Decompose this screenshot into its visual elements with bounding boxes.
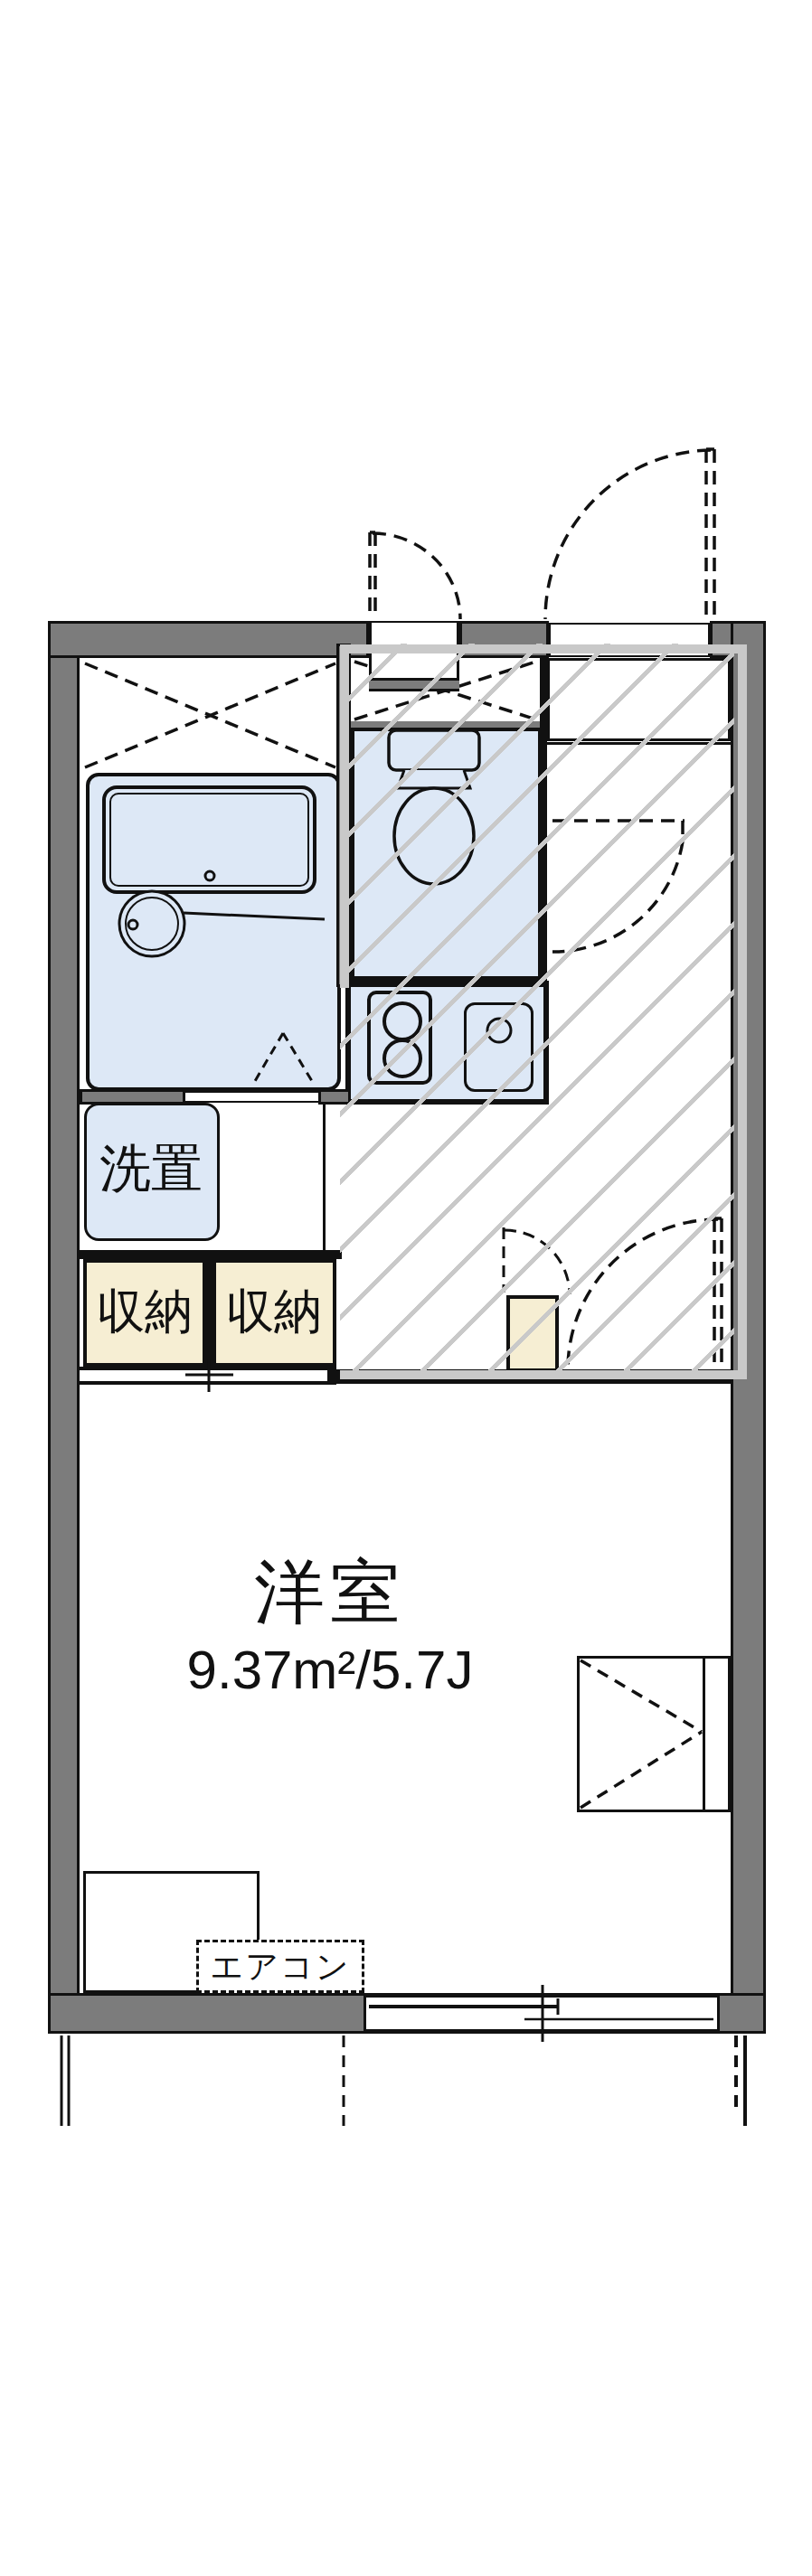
entrance-door-swing: [545, 449, 714, 619]
wall-left: [48, 621, 80, 2034]
wall-bath-bottom-left: [80, 1089, 185, 1105]
wall-bottom-right-corner: [717, 1993, 766, 2034]
wall-top-left: [48, 621, 369, 658]
floor-plan: 洋室 9.37m²/5.7J 洗置 収納 収納 エアコン: [0, 0, 812, 2576]
wall-bottom-left: [48, 1993, 366, 2034]
main-room-area: 9.37m²/5.7J: [187, 1639, 474, 1701]
wall-washroom-hall: [323, 1105, 326, 1250]
hatch-frame-top: [340, 644, 747, 653]
wall-washroom-bottom: [80, 1250, 342, 1259]
balcony-lines: [61, 2035, 745, 2126]
ps-door-swing: [370, 532, 460, 619]
washer-space-label: 洗置: [99, 1134, 203, 1204]
hatch-frame-bottom: [340, 1370, 747, 1379]
wall-right: [731, 621, 766, 2034]
bath-fixtures: [119, 871, 325, 956]
bath-upper-x-mark: [85, 663, 335, 767]
storage-right-label: 収納: [226, 1280, 322, 1345]
closet-slider-ticks: [185, 1359, 233, 1392]
aircon-label: エアコン: [210, 1945, 350, 1989]
bath-folding-door-mark: [255, 1033, 312, 1081]
storage-left-label: 収納: [97, 1280, 193, 1345]
hall-floor-hatch: [340, 644, 734, 1370]
balcony-window-sashes: [369, 1985, 713, 2042]
side-window-opening-mark: [581, 1660, 702, 1808]
main-room-label: 洋室: [254, 1546, 406, 1641]
hatch-frame-left: [340, 644, 349, 988]
hatch-frame-right: [738, 644, 747, 1379]
